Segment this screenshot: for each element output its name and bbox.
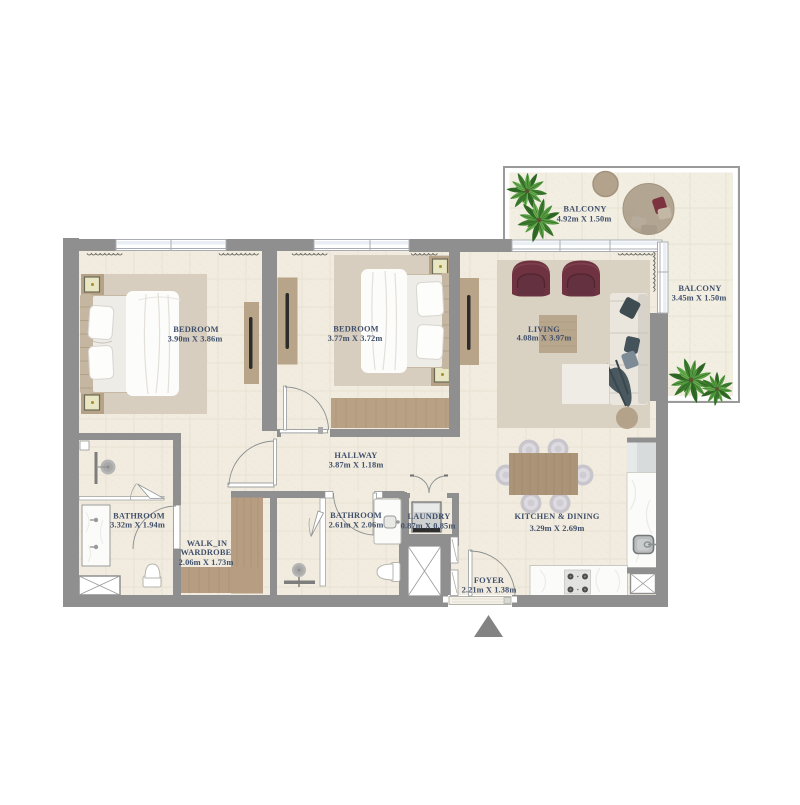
svg-text:KITCHEN & DINING: KITCHEN & DINING (514, 512, 599, 521)
svg-text:BEDROOM: BEDROOM (173, 325, 219, 334)
svg-text:0.87m X 0.85m: 0.87m X 0.85m (401, 522, 456, 531)
svg-text:3.77m X 3.72m: 3.77m X 3.72m (328, 334, 383, 343)
svg-text:FOYER: FOYER (474, 576, 505, 585)
svg-text:BALCONY: BALCONY (563, 205, 606, 214)
svg-text:BALCONY: BALCONY (678, 284, 721, 293)
svg-text:2.06m X 1.73m: 2.06m X 1.73m (179, 558, 234, 567)
svg-text:WARDROBE: WARDROBE (181, 548, 232, 557)
svg-text:3.90m X 3.86m: 3.90m X 3.86m (168, 335, 223, 344)
svg-text:HALLWAY: HALLWAY (334, 451, 377, 460)
svg-text:3.29m X 2.69m: 3.29m X 2.69m (530, 524, 585, 533)
svg-text:WALK_IN: WALK_IN (187, 539, 228, 548)
svg-text:4.08m X 3.97m: 4.08m X 3.97m (517, 334, 572, 343)
svg-text:LAUNDRY: LAUNDRY (408, 512, 451, 521)
svg-text:3.45m X 1.50m: 3.45m X 1.50m (672, 294, 727, 303)
svg-text:2.61m X 2.06m: 2.61m X 2.06m (329, 521, 384, 530)
svg-text:BEDROOM: BEDROOM (333, 325, 379, 334)
svg-text:BATHROOM: BATHROOM (330, 511, 382, 520)
svg-text:3.32m X 1.94m: 3.32m X 1.94m (110, 521, 165, 530)
svg-text:4.92m X 1.50m: 4.92m X 1.50m (557, 215, 612, 224)
svg-text:BATHROOM: BATHROOM (113, 512, 165, 521)
svg-text:3.87m X 1.18m: 3.87m X 1.18m (329, 461, 384, 470)
svg-text:2.21m X 1.38m: 2.21m X 1.38m (462, 586, 517, 595)
